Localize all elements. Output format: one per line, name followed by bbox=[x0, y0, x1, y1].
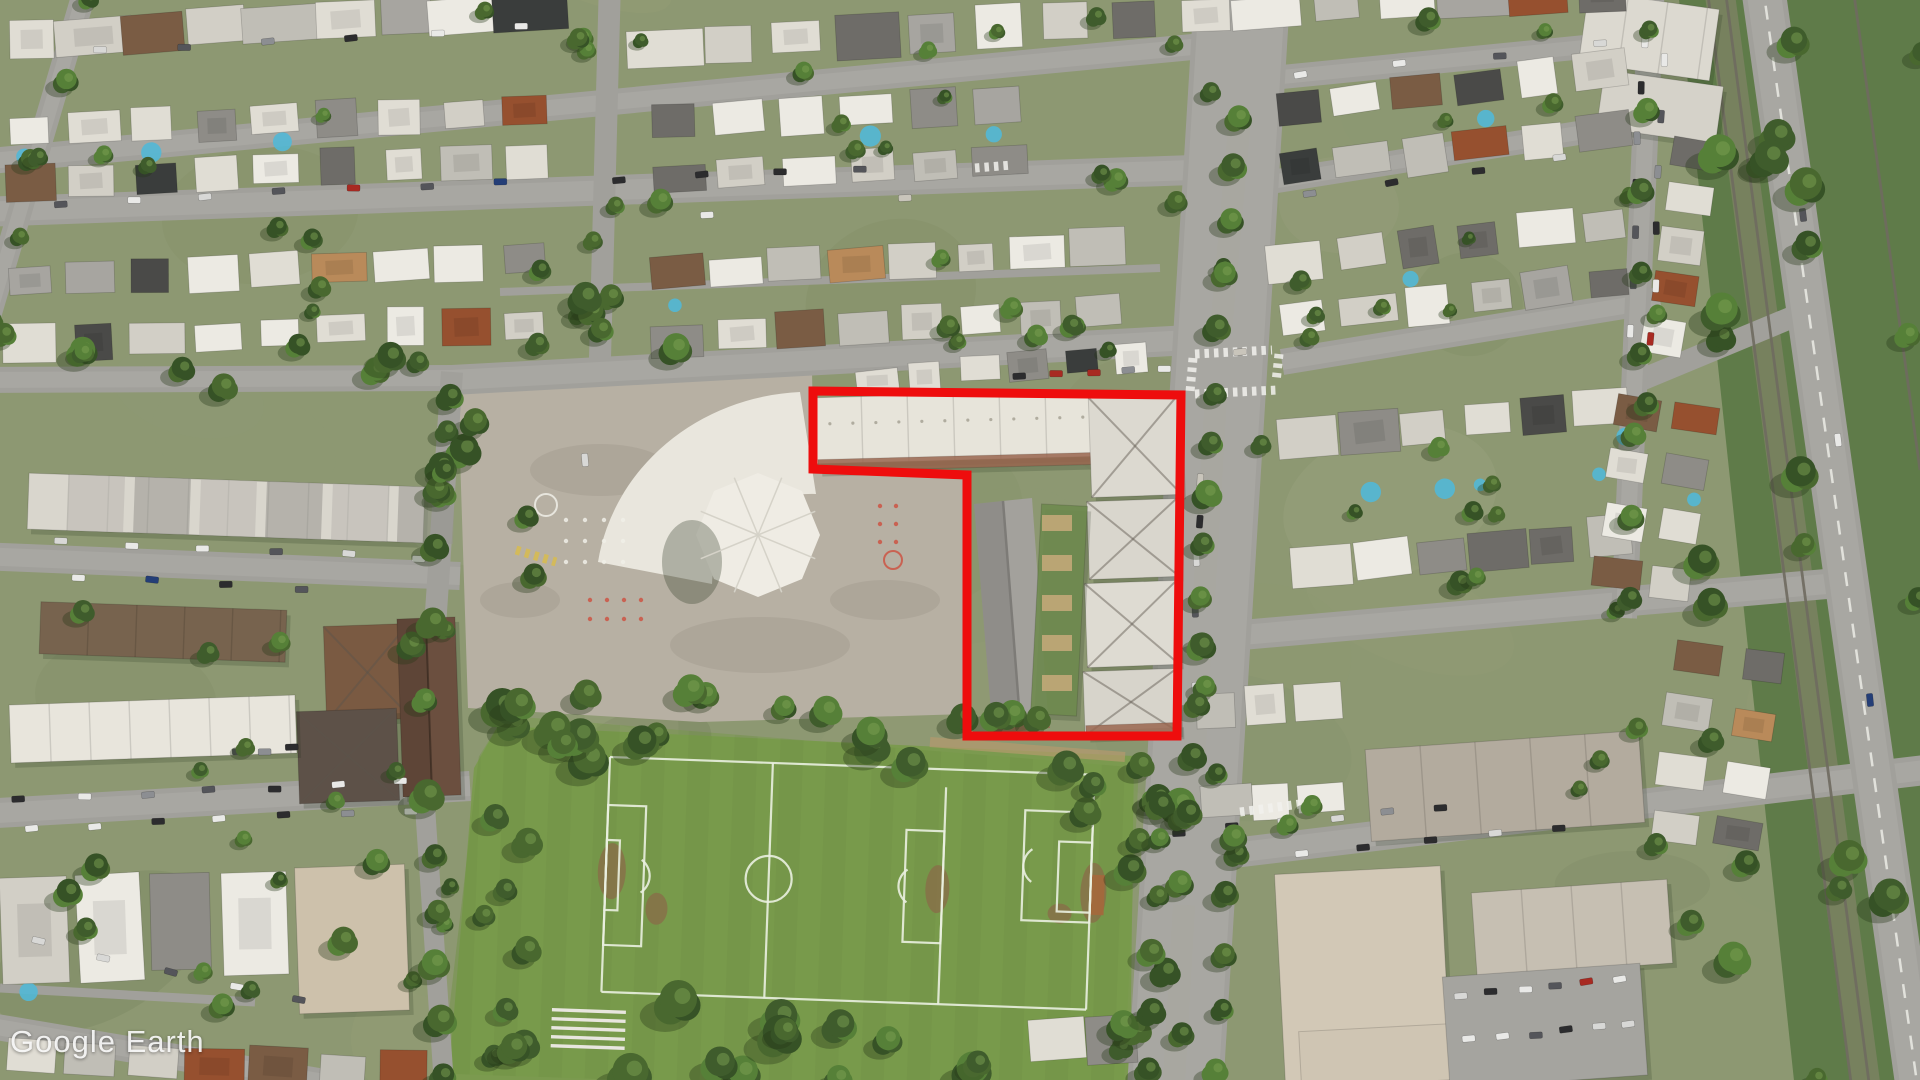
house-roof bbox=[1582, 209, 1626, 242]
roof-texture bbox=[1533, 277, 1560, 299]
yard-marking bbox=[605, 617, 609, 621]
car-body bbox=[285, 744, 298, 751]
car-body bbox=[152, 818, 165, 825]
roof-texture bbox=[916, 369, 932, 384]
tree-highlight bbox=[551, 718, 565, 732]
car-body bbox=[1233, 348, 1247, 356]
tree-highlight bbox=[994, 707, 1005, 718]
yard-marking bbox=[588, 598, 592, 602]
tree-highlight bbox=[207, 646, 215, 654]
car-body bbox=[295, 586, 308, 593]
tree-highlight bbox=[1689, 914, 1698, 923]
roof-texture bbox=[388, 108, 410, 127]
house-roof bbox=[1417, 538, 1467, 575]
tree-highlight bbox=[1190, 748, 1200, 758]
house-roof bbox=[1516, 208, 1576, 248]
yard-marking bbox=[622, 598, 626, 602]
tree-highlight bbox=[433, 848, 442, 857]
parked-car bbox=[72, 574, 85, 581]
tree-highlight bbox=[1198, 591, 1206, 599]
parked-car bbox=[128, 197, 141, 204]
roof-unit bbox=[133, 477, 191, 535]
parked-car bbox=[1434, 804, 1447, 811]
parked-car bbox=[1356, 844, 1370, 852]
yard-marking bbox=[621, 518, 625, 522]
tree-highlight bbox=[1010, 705, 1021, 716]
tree-highlight bbox=[1180, 1027, 1189, 1036]
roof-unit bbox=[67, 475, 125, 533]
tree-highlight bbox=[1229, 213, 1238, 222]
tree-highlight bbox=[840, 118, 847, 125]
yard-marking bbox=[894, 504, 898, 508]
house-roof bbox=[320, 147, 355, 185]
parked-car bbox=[1647, 332, 1655, 346]
tree-highlight bbox=[504, 883, 512, 891]
tree-highlight bbox=[1638, 347, 1647, 356]
house-roof bbox=[1517, 57, 1558, 99]
parked-car bbox=[1454, 992, 1467, 999]
tree-highlight bbox=[1654, 837, 1662, 845]
goal-structure bbox=[1091, 875, 1105, 915]
tree-highlight bbox=[448, 389, 458, 399]
tree-highlight bbox=[1223, 886, 1233, 896]
tree-highlight bbox=[1656, 308, 1663, 315]
car-body bbox=[515, 23, 528, 29]
tree-highlight bbox=[1815, 1072, 1823, 1080]
house-roof bbox=[1390, 73, 1443, 109]
tree-highlight bbox=[1468, 234, 1473, 239]
tree-highlight bbox=[1444, 116, 1450, 122]
car-body bbox=[898, 194, 911, 201]
house-roof bbox=[194, 323, 242, 352]
parked-car bbox=[268, 786, 281, 792]
tree-highlight bbox=[599, 322, 608, 331]
parked-car bbox=[1196, 515, 1203, 528]
tree-highlight bbox=[395, 765, 402, 772]
roof-texture bbox=[325, 260, 353, 276]
tree-highlight bbox=[1199, 637, 1209, 647]
parked-car bbox=[196, 545, 209, 551]
yard-marking bbox=[564, 539, 568, 543]
tree-highlight bbox=[244, 741, 251, 748]
tree-highlight bbox=[1544, 26, 1550, 32]
house-roof bbox=[194, 155, 238, 192]
roof-unit bbox=[331, 484, 389, 542]
house-roof bbox=[319, 1054, 366, 1080]
tree-highlight bbox=[146, 160, 152, 166]
parked-car bbox=[1303, 190, 1317, 198]
tree-highlight bbox=[740, 1062, 753, 1075]
tree-highlight bbox=[375, 854, 384, 863]
tree-highlight bbox=[493, 809, 503, 819]
roof-texture bbox=[1123, 350, 1140, 366]
tree-highlight bbox=[432, 955, 443, 966]
tree-highlight bbox=[886, 1031, 896, 1041]
tree-highlight bbox=[1310, 799, 1317, 806]
parked-car bbox=[581, 453, 589, 467]
house-roof bbox=[1591, 556, 1643, 590]
roof-texture bbox=[264, 161, 288, 177]
parked-car bbox=[1552, 825, 1565, 832]
roof-texture bbox=[912, 312, 933, 330]
tree-highlight bbox=[334, 795, 341, 802]
parked-car bbox=[695, 171, 709, 179]
tree-highlight bbox=[1083, 803, 1094, 814]
car-body bbox=[277, 811, 290, 818]
parked-car bbox=[1424, 836, 1437, 843]
tree-highlight bbox=[996, 27, 1002, 33]
house-roof bbox=[1575, 109, 1633, 152]
house-roof bbox=[960, 304, 1000, 335]
tree-highlight bbox=[202, 966, 209, 973]
tree-highlight bbox=[82, 346, 90, 354]
car-body bbox=[1356, 844, 1370, 852]
tree-highlight bbox=[1718, 299, 1732, 313]
house-roof bbox=[149, 872, 211, 970]
car-body bbox=[272, 187, 285, 194]
yard-marking bbox=[622, 617, 626, 621]
tree-highlight bbox=[1070, 319, 1078, 327]
tree-highlight bbox=[1716, 141, 1730, 155]
tree-highlight bbox=[609, 289, 618, 298]
car-body bbox=[128, 197, 141, 204]
roof-texture bbox=[207, 118, 226, 134]
tree-highlight bbox=[430, 613, 441, 624]
roof-texture bbox=[453, 153, 480, 172]
tree-highlight bbox=[1203, 680, 1211, 688]
yard-marking bbox=[894, 522, 898, 526]
house-roof bbox=[1742, 649, 1784, 684]
tree-highlight bbox=[1035, 329, 1043, 337]
parked-car bbox=[898, 194, 911, 201]
garden-box bbox=[1042, 635, 1072, 651]
car-body bbox=[88, 823, 102, 831]
parked-car bbox=[431, 30, 444, 37]
house-roof bbox=[505, 145, 548, 180]
tree-highlight bbox=[461, 440, 473, 452]
parked-car bbox=[341, 810, 354, 817]
roof-texture bbox=[730, 325, 755, 342]
tree-highlight bbox=[1215, 319, 1225, 329]
parked-car bbox=[198, 193, 212, 201]
car-body bbox=[1647, 332, 1655, 346]
house-roof bbox=[129, 323, 185, 354]
yard-marking bbox=[894, 540, 898, 544]
tree-highlight bbox=[1578, 784, 1584, 790]
tree-highlight bbox=[1221, 1003, 1229, 1011]
house-roof bbox=[373, 248, 430, 282]
tree-highlight bbox=[908, 753, 921, 766]
house-roof bbox=[1436, 0, 1511, 19]
car-body bbox=[54, 201, 67, 208]
yard-marking bbox=[583, 539, 587, 543]
building-roof bbox=[296, 708, 403, 809]
parked-car bbox=[1013, 373, 1026, 380]
roof-texture bbox=[79, 172, 103, 189]
parked-car bbox=[258, 749, 271, 756]
yard-marking bbox=[621, 539, 625, 543]
parked-car bbox=[285, 744, 298, 751]
tree-highlight bbox=[654, 727, 663, 736]
tree-highlight bbox=[445, 424, 453, 432]
tree-highlight bbox=[1496, 509, 1502, 515]
house-roof bbox=[1402, 133, 1449, 178]
tree-highlight bbox=[1598, 754, 1605, 761]
roof-texture bbox=[1540, 536, 1563, 556]
parked-car bbox=[344, 34, 358, 42]
car-body bbox=[1592, 1022, 1606, 1029]
tree-highlight bbox=[1063, 757, 1076, 770]
garden-box bbox=[1042, 595, 1072, 611]
car-body bbox=[1488, 829, 1502, 837]
tree-highlight bbox=[1791, 32, 1802, 43]
tree-highlight bbox=[1491, 479, 1497, 485]
car-body bbox=[695, 171, 709, 179]
parked-car bbox=[347, 185, 360, 192]
tree-highlight bbox=[577, 725, 591, 739]
parked-car bbox=[1866, 693, 1874, 707]
satellite-imagery bbox=[0, 0, 1920, 1080]
house-roof bbox=[1313, 0, 1359, 21]
car-body bbox=[1552, 825, 1565, 832]
tree-highlight bbox=[1178, 875, 1188, 885]
car-body bbox=[202, 786, 215, 793]
car-body bbox=[1392, 59, 1406, 67]
roof-unit bbox=[265, 481, 323, 539]
tree-highlight bbox=[1308, 331, 1315, 338]
car-body bbox=[1472, 167, 1486, 175]
tree-highlight bbox=[1551, 97, 1558, 104]
parked-car bbox=[1295, 850, 1309, 858]
building-roof bbox=[1365, 730, 1649, 846]
house-roof bbox=[971, 145, 1028, 177]
parked-car bbox=[212, 815, 226, 823]
house-roof bbox=[1353, 536, 1412, 581]
car-body bbox=[341, 810, 354, 817]
roof-texture bbox=[967, 250, 985, 265]
parked-car bbox=[494, 178, 507, 185]
tree-highlight bbox=[1699, 551, 1711, 563]
tree-highlight bbox=[1201, 537, 1209, 545]
roof-texture bbox=[866, 375, 888, 387]
parked-car bbox=[1488, 829, 1502, 837]
tree-highlight bbox=[1906, 327, 1915, 336]
car-body bbox=[853, 166, 866, 172]
roof-texture bbox=[199, 1057, 229, 1076]
tree-highlight bbox=[1475, 571, 1482, 578]
roof-texture bbox=[454, 317, 479, 337]
roof-texture bbox=[93, 900, 127, 955]
tree-highlight bbox=[1775, 125, 1788, 138]
roof-texture bbox=[73, 26, 113, 47]
tree-highlight bbox=[1802, 537, 1811, 546]
roof-texture bbox=[1532, 405, 1555, 425]
roof-texture bbox=[263, 1056, 294, 1078]
tree-highlight bbox=[242, 834, 248, 840]
car-body bbox=[421, 183, 434, 190]
car-body bbox=[270, 548, 283, 555]
tree-highlight bbox=[1437, 441, 1445, 449]
roof-texture bbox=[1482, 287, 1502, 303]
tree-highlight bbox=[532, 568, 541, 577]
tree-highlight bbox=[1426, 12, 1435, 21]
roof-texture bbox=[1586, 58, 1615, 80]
parked-car bbox=[612, 176, 626, 184]
tree-highlight bbox=[516, 694, 528, 706]
yard-marking bbox=[639, 598, 643, 602]
house-roof bbox=[380, 0, 431, 35]
roof-texture bbox=[262, 111, 287, 127]
tree-highlight bbox=[296, 338, 305, 347]
earth-viewport[interactable]: Google Earth bbox=[0, 0, 1920, 1080]
car-body bbox=[1519, 986, 1532, 993]
tree-highlight bbox=[584, 685, 595, 696]
car-body bbox=[347, 185, 360, 192]
tree-highlight bbox=[854, 143, 861, 150]
house-roof bbox=[491, 0, 569, 33]
house-roof bbox=[775, 309, 826, 349]
tree-highlight bbox=[221, 378, 231, 388]
tree-highlight bbox=[443, 464, 451, 472]
car-body bbox=[1424, 836, 1437, 843]
tree-highlight bbox=[1186, 805, 1196, 815]
car-body bbox=[196, 545, 209, 551]
tree-highlight bbox=[614, 200, 621, 207]
tree-highlight bbox=[416, 355, 424, 363]
tree-highlight bbox=[1639, 183, 1648, 192]
parked-car bbox=[141, 791, 155, 799]
tree-highlight bbox=[1231, 158, 1241, 168]
parked-car bbox=[1548, 982, 1561, 989]
car-body bbox=[1653, 222, 1660, 235]
parked-car bbox=[1050, 370, 1063, 376]
house-roof bbox=[444, 100, 485, 129]
parked-car bbox=[261, 38, 275, 46]
parked-car bbox=[93, 47, 106, 54]
house-roof bbox=[973, 86, 1021, 125]
roof-texture bbox=[728, 164, 752, 180]
parked-car bbox=[700, 211, 713, 218]
parked-car bbox=[1122, 366, 1135, 373]
yard-marking bbox=[602, 539, 606, 543]
house-roof bbox=[782, 156, 836, 186]
parked-car bbox=[1661, 53, 1668, 66]
parked-car bbox=[1331, 814, 1345, 822]
tree-highlight bbox=[1381, 302, 1387, 308]
tree-highlight bbox=[1213, 387, 1221, 395]
car-body bbox=[332, 781, 346, 789]
tree-highlight bbox=[956, 336, 962, 342]
tree-highlight bbox=[824, 701, 835, 712]
parked-car bbox=[178, 44, 191, 51]
tree-highlight bbox=[783, 1022, 793, 1032]
parked-car bbox=[25, 825, 39, 833]
car-body bbox=[1654, 165, 1661, 178]
yard-marking bbox=[878, 522, 882, 526]
car-body bbox=[1295, 850, 1309, 858]
tree-highlight bbox=[627, 1061, 642, 1076]
car-body bbox=[1158, 366, 1171, 372]
car-body bbox=[1303, 190, 1317, 198]
car-body bbox=[612, 176, 626, 184]
tree-highlight bbox=[1645, 396, 1654, 405]
parked-car bbox=[54, 537, 67, 544]
car-body bbox=[261, 38, 275, 46]
tree-highlight bbox=[1215, 767, 1223, 775]
tree-highlight bbox=[1209, 86, 1216, 93]
tree-highlight bbox=[1628, 591, 1637, 600]
roof-texture bbox=[238, 898, 271, 950]
tree-highlight bbox=[1635, 722, 1643, 730]
tree-highlight bbox=[81, 604, 90, 613]
tree-highlight bbox=[836, 1070, 846, 1080]
parked-car bbox=[515, 23, 528, 29]
tree-highlight bbox=[441, 1068, 450, 1077]
building-roof bbox=[1365, 731, 1645, 842]
tree-highlight bbox=[64, 73, 73, 82]
parked-car bbox=[1634, 132, 1641, 145]
tree-highlight bbox=[1149, 944, 1159, 954]
car-body bbox=[1652, 279, 1659, 292]
roof-texture bbox=[1290, 158, 1310, 176]
tree-highlight bbox=[66, 884, 76, 894]
garden-box bbox=[1042, 675, 1072, 691]
parked-car bbox=[12, 795, 25, 802]
house-roof bbox=[380, 1050, 427, 1080]
tree-highlight bbox=[868, 723, 880, 735]
car-body bbox=[494, 178, 507, 185]
car-body bbox=[1548, 982, 1561, 989]
tree-highlight bbox=[1163, 963, 1174, 974]
tree-highlight bbox=[1213, 1063, 1222, 1072]
parked-car bbox=[1087, 369, 1100, 376]
car-body bbox=[1553, 153, 1567, 161]
tree-highlight bbox=[433, 539, 443, 549]
parked-car bbox=[1392, 59, 1406, 67]
parked-car bbox=[202, 786, 215, 793]
tree-highlight bbox=[438, 1011, 450, 1023]
tree-highlight bbox=[1846, 847, 1859, 860]
parked-car bbox=[1519, 986, 1532, 993]
car-body bbox=[1634, 132, 1641, 145]
tree-highlight bbox=[1010, 301, 1018, 309]
car-body bbox=[344, 34, 358, 42]
yard-marking bbox=[639, 617, 643, 621]
house-roof bbox=[249, 250, 300, 287]
tree-highlight bbox=[536, 337, 544, 345]
car-body bbox=[581, 453, 589, 467]
tree-highlight bbox=[592, 235, 599, 242]
house-roof bbox=[186, 4, 247, 45]
yard-marking bbox=[878, 540, 882, 544]
tree-highlight bbox=[276, 221, 283, 228]
car-body bbox=[1632, 226, 1639, 239]
car-body bbox=[342, 550, 356, 558]
tree-highlight bbox=[1100, 168, 1107, 175]
tree-highlight bbox=[1805, 236, 1816, 247]
car-body bbox=[1380, 808, 1394, 816]
yard-marking bbox=[605, 598, 609, 602]
tree-highlight bbox=[278, 875, 284, 881]
parked-car bbox=[1496, 1032, 1510, 1040]
roof-texture bbox=[330, 9, 361, 30]
tree-highlight bbox=[1175, 195, 1183, 203]
tree-highlight bbox=[659, 193, 668, 202]
tree-highlight bbox=[1146, 1062, 1156, 1072]
tree-highlight bbox=[1205, 485, 1216, 496]
yard-marking bbox=[602, 518, 606, 522]
car-body bbox=[178, 44, 191, 51]
